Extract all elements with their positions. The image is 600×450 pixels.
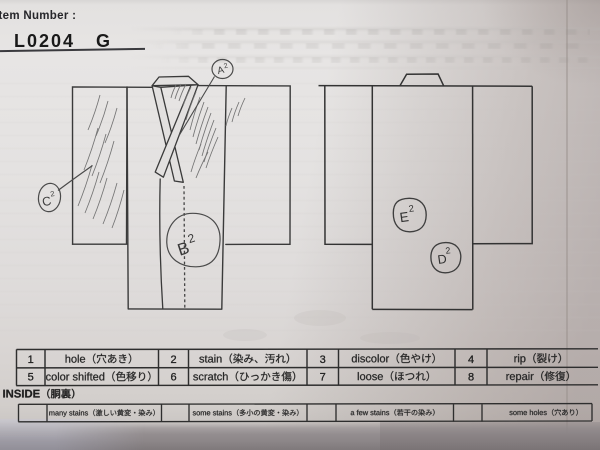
svg-text:2: 2 <box>170 354 176 366</box>
svg-text:2: 2 <box>445 245 451 256</box>
svg-text:3: 3 <box>320 354 326 366</box>
svg-text:1: 1 <box>28 354 34 366</box>
svg-text:2: 2 <box>408 203 415 215</box>
svg-text:6: 6 <box>170 372 176 384</box>
svg-text:7: 7 <box>320 372 326 384</box>
svg-text:5: 5 <box>28 372 34 384</box>
svg-text:2: 2 <box>223 63 229 71</box>
svg-text:4: 4 <box>468 354 474 366</box>
svg-text:2: 2 <box>50 189 56 199</box>
svg-text:8: 8 <box>468 372 474 384</box>
